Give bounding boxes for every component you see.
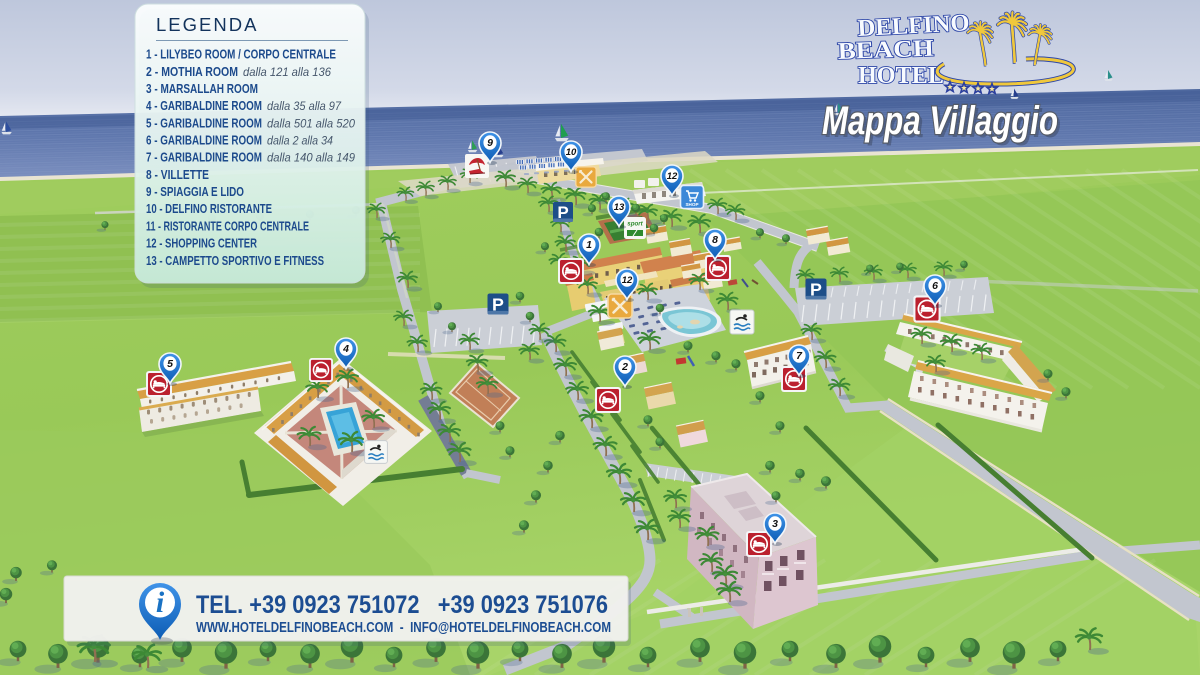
svg-text:8 - VILLETTE: 8 - VILLETTE	[146, 167, 209, 182]
svg-text:12 - SHOPPING CENTER: 12 - SHOPPING CENTER	[146, 236, 257, 251]
svg-text:TEL. +39 0923 751072 +39 092: TEL. +39 0923 751072 +39 0923 751076	[196, 591, 608, 619]
svg-text:1 - LILYBEO ROOM / CORPO CENTR: 1 - LILYBEO ROOM / CORPO CENTRALE	[146, 47, 336, 62]
svg-text:7 - GARIBALDINE ROOM: 7 - GARIBALDINE ROOM	[146, 150, 262, 165]
svg-text:10: 10	[566, 147, 577, 158]
svg-text:9: 9	[487, 137, 493, 149]
svg-text:SHOP: SHOP	[685, 202, 698, 207]
svg-text:2 - MOTHIA ROOM: 2 - MOTHIA ROOM	[146, 64, 238, 79]
svg-text:LEGENDA: LEGENDA	[156, 14, 258, 35]
svg-text:12: 12	[622, 275, 633, 286]
svg-text:dalla 2 alla 34: dalla 2 alla 34	[267, 134, 333, 148]
svg-text:BEACH: BEACH	[837, 36, 934, 65]
svg-text:12: 12	[667, 171, 678, 182]
svg-text:4 - GARIBALDINE ROOM: 4 - GARIBALDINE ROOM	[146, 98, 262, 113]
svg-text:WWW.HOTELDELFINOBEACH.COM -: WWW.HOTELDELFINOBEACH.COM - INFO@HOTELDE…	[196, 620, 611, 636]
svg-text:8: 8	[712, 234, 718, 246]
svg-text:6 - GARIBALDINE ROOM: 6 - GARIBALDINE ROOM	[146, 133, 262, 148]
svg-text:6: 6	[932, 280, 938, 292]
svg-text:sport: sport	[627, 221, 643, 228]
svg-text:i: i	[156, 586, 165, 619]
svg-text:9 - SPIAGGIA E LIDO: 9 - SPIAGGIA E LIDO	[146, 184, 244, 199]
svg-text:3: 3	[772, 518, 778, 530]
svg-text:dalla 501 alla 520: dalla 501 alla 520	[267, 116, 355, 130]
svg-text:HOTEL: HOTEL	[858, 63, 944, 89]
svg-text:dalla 140 alla 149: dalla 140 alla 149	[267, 151, 355, 165]
svg-text:dalla 35 alla 97: dalla 35 alla 97	[267, 99, 342, 113]
svg-text:3 - MARSALLAH ROOM: 3 - MARSALLAH ROOM	[146, 81, 258, 96]
svg-text:10 - DELFINO RISTORANTE: 10 - DELFINO RISTORANTE	[146, 201, 272, 216]
svg-text:Mappa Villaggio: Mappa Villaggio	[822, 99, 1058, 143]
svg-text:2: 2	[621, 361, 628, 373]
svg-text:13: 13	[614, 202, 625, 213]
svg-text:1: 1	[586, 239, 592, 251]
svg-text:13 - CAMPETTO SPORTIVO E FITNE: 13 - CAMPETTO SPORTIVO E FITNESS	[146, 253, 324, 268]
svg-text:dalla 121 alla 136: dalla 121 alla 136	[243, 65, 331, 79]
svg-text:5 - GARIBALDINE ROOM: 5 - GARIBALDINE ROOM	[146, 115, 262, 130]
svg-text:5: 5	[167, 358, 173, 370]
svg-text:4: 4	[342, 343, 349, 355]
svg-text:11 - RISTORANTE CORPO CENTRALE: 11 - RISTORANTE CORPO CENTRALE	[146, 218, 309, 233]
